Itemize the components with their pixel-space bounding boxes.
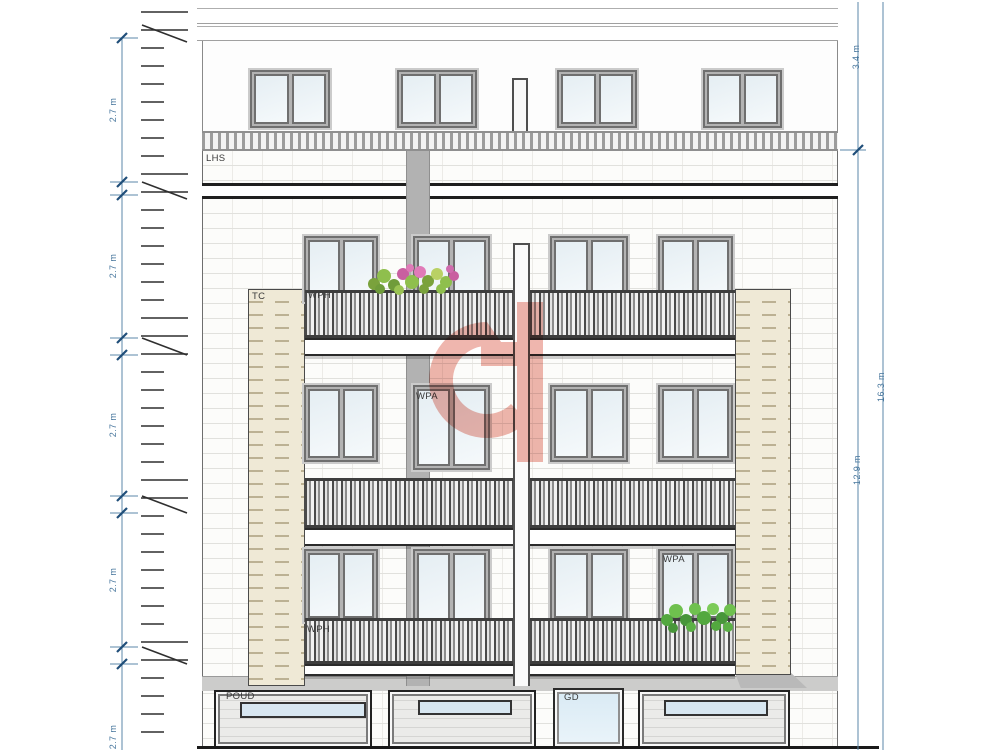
dim-label-right-main: 12.9 m bbox=[852, 455, 862, 485]
elevation-drawing-canvas: LHS TC WPH WPA WPA WPH POUD GD 2.7 m 2.7… bbox=[0, 0, 1000, 750]
dim-label-floor-height: 2.7 m bbox=[108, 413, 118, 438]
dim-label-floor-height: 2.7 m bbox=[108, 98, 118, 123]
dim-label-floor-height: 2.7 m bbox=[108, 725, 118, 750]
dim-label-right-top: 3.4 m bbox=[851, 45, 861, 70]
dim-label-right-total: 16.3 m bbox=[876, 372, 886, 402]
dim-label-floor-height: 2.7 m bbox=[108, 568, 118, 593]
dimension-annotations bbox=[0, 0, 1000, 750]
dim-label-floor-height: 2.7 m bbox=[108, 254, 118, 279]
